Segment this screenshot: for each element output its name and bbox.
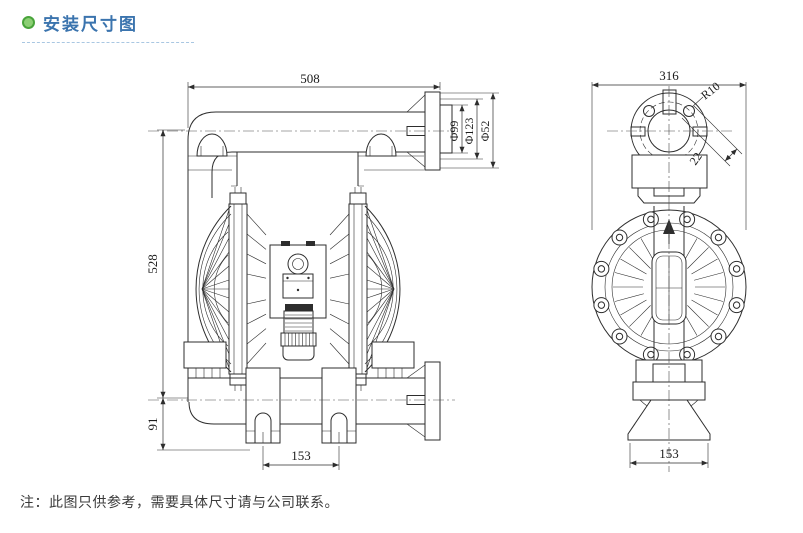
left-clamp-block — [184, 342, 226, 368]
product-dimension-section: 安装尺寸图 — [0, 0, 803, 533]
dim-flange-bore: Φ52 — [478, 121, 492, 142]
side-view-drawing: 316 R10 22 153 — [592, 68, 746, 472]
muffler — [281, 304, 316, 360]
dim-base-height: 91 — [145, 418, 160, 431]
dim-foot-spacing: 153 — [291, 448, 311, 463]
left-top-dome — [197, 134, 227, 156]
dim-total-height: 528 — [145, 254, 160, 274]
right-top-dome — [366, 134, 396, 156]
dim-hole-radius: R10 — [698, 79, 722, 102]
right-clamp-block — [372, 342, 414, 368]
disclaimer-note: 注：此图只供参考，需要具体尺寸请与公司联系。 — [20, 492, 339, 512]
mounting-feet — [246, 368, 356, 443]
front-view-drawing: 508 528 91 Φ99 Φ123 Φ52 153 — [145, 71, 499, 470]
installation-dimension-drawing: 508 528 91 Φ99 Φ123 Φ52 153 — [0, 0, 803, 533]
dim-flange-face: Φ99 — [447, 121, 461, 142]
dim-top-width: 508 — [300, 71, 320, 86]
dim-depth: 316 — [659, 68, 679, 83]
dim-flange-bolt-circle: Φ123 — [462, 118, 476, 145]
dim-foot-width: 153 — [659, 446, 679, 461]
